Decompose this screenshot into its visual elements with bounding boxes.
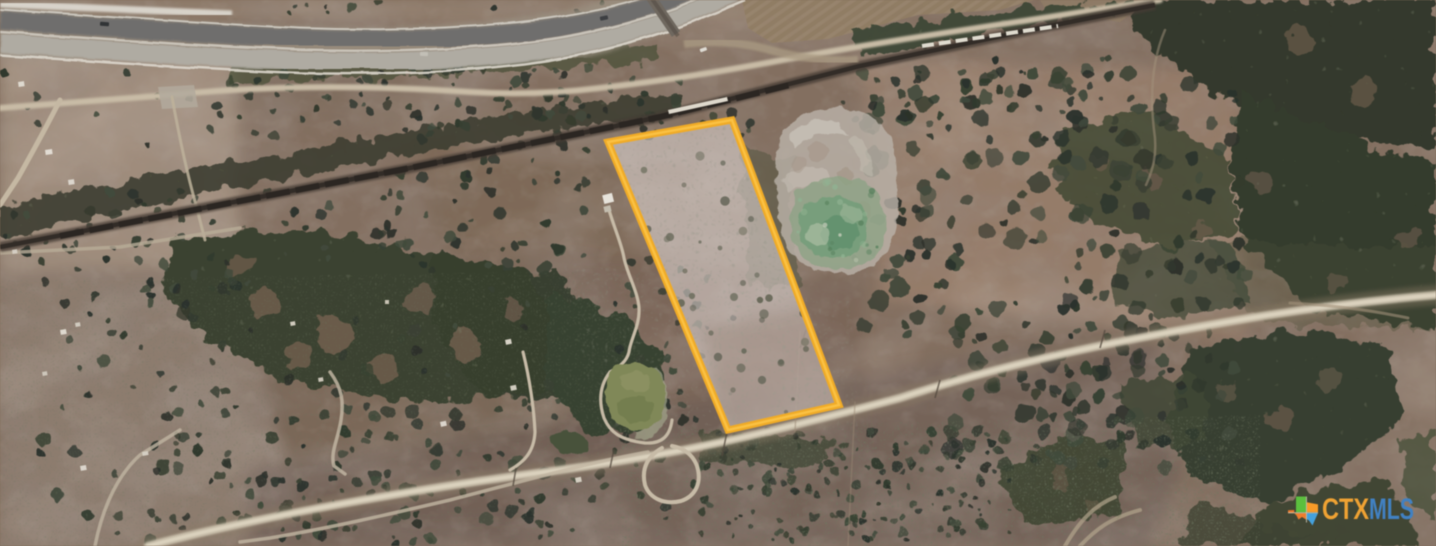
svg-text:CTX: CTX — [1322, 493, 1369, 526]
svg-text:MLS: MLS — [1369, 493, 1414, 526]
